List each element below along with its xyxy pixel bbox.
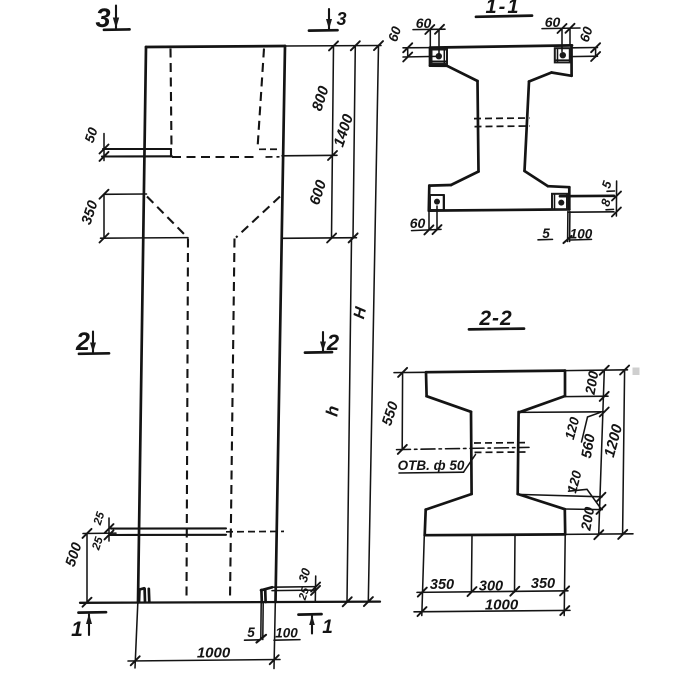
svg-text:60: 60	[416, 15, 432, 31]
svg-text:300: 300	[479, 579, 503, 595]
svg-text:2: 2	[75, 328, 90, 356]
svg-text:ОТВ. ф 50: ОТВ. ф 50	[398, 458, 465, 473]
svg-text:2-2: 2-2	[478, 307, 512, 330]
svg-text:100: 100	[275, 626, 298, 641]
svg-text:1: 1	[71, 618, 83, 641]
svg-text:2: 2	[326, 330, 340, 355]
svg-text:350: 350	[531, 576, 555, 592]
svg-text:60: 60	[545, 14, 561, 30]
svg-text:5: 5	[247, 625, 255, 640]
svg-text:1000: 1000	[197, 645, 231, 662]
svg-text:1000: 1000	[485, 597, 519, 614]
svg-text:3: 3	[336, 9, 346, 29]
svg-text:60: 60	[410, 215, 426, 231]
svg-text:350: 350	[430, 577, 454, 593]
svg-text:1: 1	[322, 617, 333, 638]
